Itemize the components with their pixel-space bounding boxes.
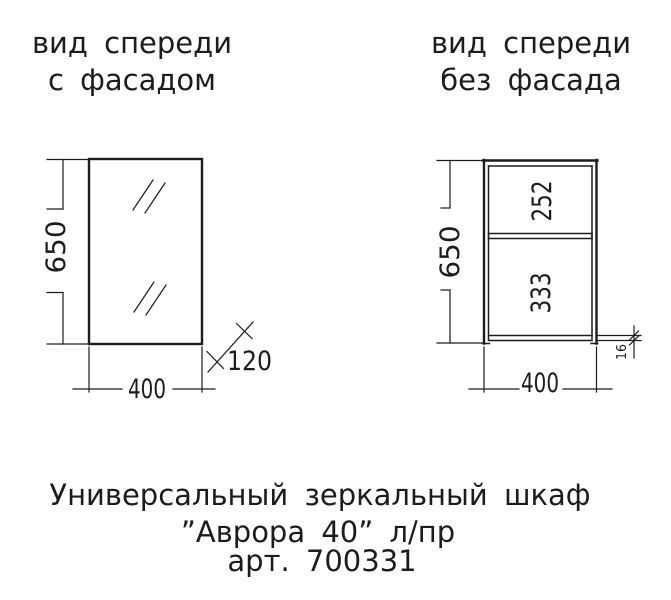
left-view-title-line1: вид спереди: [32, 26, 232, 60]
left-width-value: 400: [128, 374, 166, 405]
mirror-hatch-lower: [134, 282, 166, 315]
technical-drawing-canvas: вид спереди с фасадом 650: [0, 0, 671, 600]
panel-thickness-value: 16: [615, 344, 630, 360]
left-height-value: 650: [41, 221, 72, 274]
mirror-hatch-upper: [133, 180, 165, 213]
right-width-dimension: 400: [469, 347, 612, 399]
upper-section-value: 252: [527, 181, 558, 222]
caption-line1: Универсальный зеркальный шкаф: [49, 478, 590, 512]
right-view-title-line2: без фасада: [440, 63, 621, 97]
right-view-title-line1: вид спереди: [431, 26, 631, 60]
right-height-value: 650: [435, 226, 466, 279]
depth-dimension: 120: [207, 322, 272, 377]
right-width-value: 400: [521, 368, 559, 399]
mirror-front-outline: [89, 159, 202, 344]
panel-thickness-dimension: 16: [598, 326, 642, 360]
caption-line3: арт. 700331: [227, 544, 416, 578]
left-view-title-line2: с фасадом: [48, 63, 216, 97]
left-height-dimension: 650: [41, 160, 89, 345]
drawing-svg: вид спереди с фасадом 650: [0, 0, 671, 600]
right-height-dimension: 650: [435, 161, 484, 344]
product-caption: Универсальный зеркальный шкаф ”Аврора 40…: [49, 478, 590, 578]
middle-shelf: [489, 234, 593, 239]
view-without-facade: вид спереди без фасада 252 333: [431, 26, 641, 399]
view-with-facade: вид спереди с фасадом 650: [32, 26, 272, 405]
left-width-dimension: 400: [73, 347, 215, 405]
depth-value: 120: [227, 346, 272, 377]
bottom-panel: [489, 336, 593, 341]
lower-section-value: 333: [526, 273, 557, 314]
